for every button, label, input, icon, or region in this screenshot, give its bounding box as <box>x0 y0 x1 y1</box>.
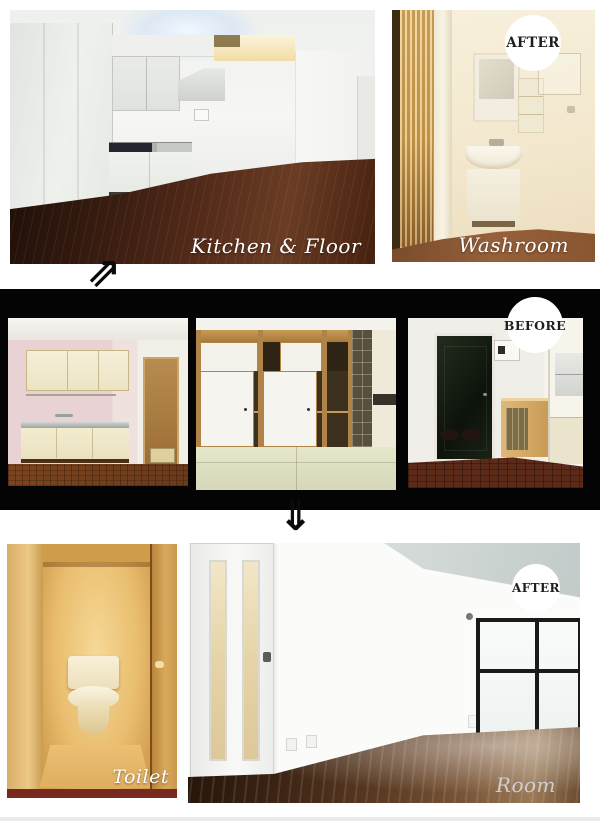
upper-niche <box>43 544 150 562</box>
door-pull <box>307 408 310 411</box>
old-lower-cabinets <box>21 428 129 463</box>
loft-alcove <box>214 35 294 60</box>
upper-cabinets <box>112 56 180 111</box>
mirror-glass <box>479 59 515 100</box>
entryway-photo <box>408 318 583 488</box>
wood-post <box>322 330 327 447</box>
door-handle <box>155 661 165 669</box>
kitchen-floor-caption: Kitchen & Floor <box>191 234 361 258</box>
vanity-cabinet <box>467 169 520 227</box>
wood-post <box>258 330 263 447</box>
interior-door <box>190 543 274 779</box>
frosted-glass-panel <box>242 560 260 761</box>
balcony-window <box>476 618 580 738</box>
sink-basin <box>465 146 522 169</box>
ceiling <box>196 318 396 330</box>
door-vent <box>150 448 175 463</box>
kitchen-counter-beyond <box>373 394 396 405</box>
down-double-arrow-icon: ⇓ <box>278 495 313 537</box>
alcove-shadow <box>214 35 240 46</box>
hall-floor-strip <box>7 789 177 798</box>
wall-outlet <box>306 735 317 748</box>
glass-partition <box>352 330 396 447</box>
washroom-caption: Washroom <box>459 233 570 257</box>
shelf-shadow <box>43 562 150 567</box>
room-caption: Room <box>496 773 556 797</box>
wall-outlet <box>286 738 297 751</box>
before-badge-text: BEFORE <box>504 318 566 333</box>
after-badge-text: AFTER <box>506 35 560 51</box>
door-pull <box>244 408 247 411</box>
old-kitchen-photo <box>8 318 188 486</box>
entrance-door <box>434 333 494 461</box>
before-badge: BEFORE <box>507 297 563 353</box>
tatami-closet-photo <box>196 318 396 490</box>
door-knob <box>483 393 487 397</box>
room-opening <box>548 328 583 464</box>
tatami-beyond <box>550 417 583 464</box>
upper-closet-door <box>280 342 322 372</box>
parquet-floor <box>8 464 188 486</box>
sliding-closet-door <box>263 371 317 447</box>
room-photo: AFTER Room <box>188 543 580 803</box>
washroom-photo: AFTER Washroom <box>392 10 595 262</box>
page-bottom-edge <box>0 817 600 821</box>
toilet-pedestal <box>78 701 109 734</box>
toilet-tank <box>68 656 119 689</box>
door-lever-handle <box>263 652 271 663</box>
wooden-door <box>143 357 179 472</box>
door-edge <box>150 544 177 798</box>
toilet-caption: Toilet <box>112 766 169 788</box>
old-upper-cabinets <box>26 350 129 391</box>
cabinet-kickplate <box>21 459 129 463</box>
after-badge: AFTER <box>505 15 561 71</box>
open-door-panel <box>7 544 46 798</box>
before-strip: BEFORE <box>0 289 600 510</box>
wall-intercom <box>194 109 209 121</box>
toilet-photo: Toilet <box>7 544 177 798</box>
glass-door-grid <box>352 330 372 447</box>
old-faucet <box>55 414 73 417</box>
ceiling <box>8 318 188 340</box>
kitchen-floor-photo: Kitchen & Floor <box>10 10 375 264</box>
towel-hook <box>567 106 575 114</box>
up-right-double-arrow-icon: ⇗ <box>86 251 121 293</box>
bathroom-door-frame <box>392 10 400 262</box>
frosted-glass-panel <box>209 560 227 761</box>
after-badge: AFTER <box>512 564 560 612</box>
shoes <box>462 429 481 441</box>
window-mullion <box>480 669 578 673</box>
wall-pillar <box>433 10 452 252</box>
shoe-cabinet <box>501 398 548 457</box>
shoes <box>440 429 459 441</box>
tatami-floor <box>196 447 396 490</box>
sink-faucet <box>489 139 503 147</box>
window-beyond <box>555 353 583 397</box>
after-badge-text: AFTER <box>512 581 560 595</box>
towel-rail <box>26 394 116 397</box>
cabinet-glass-front <box>506 408 527 451</box>
range-hood <box>178 68 225 101</box>
window-mullion <box>535 622 539 734</box>
shower-room-door <box>400 10 432 247</box>
renovation-before-after-collage: { "colors": { "page_background": "#fffff… <box>0 0 600 821</box>
wood-post <box>196 330 201 447</box>
sliding-closet-door <box>200 371 254 447</box>
wall-vent <box>466 613 473 620</box>
upper-closet-door <box>200 342 258 372</box>
